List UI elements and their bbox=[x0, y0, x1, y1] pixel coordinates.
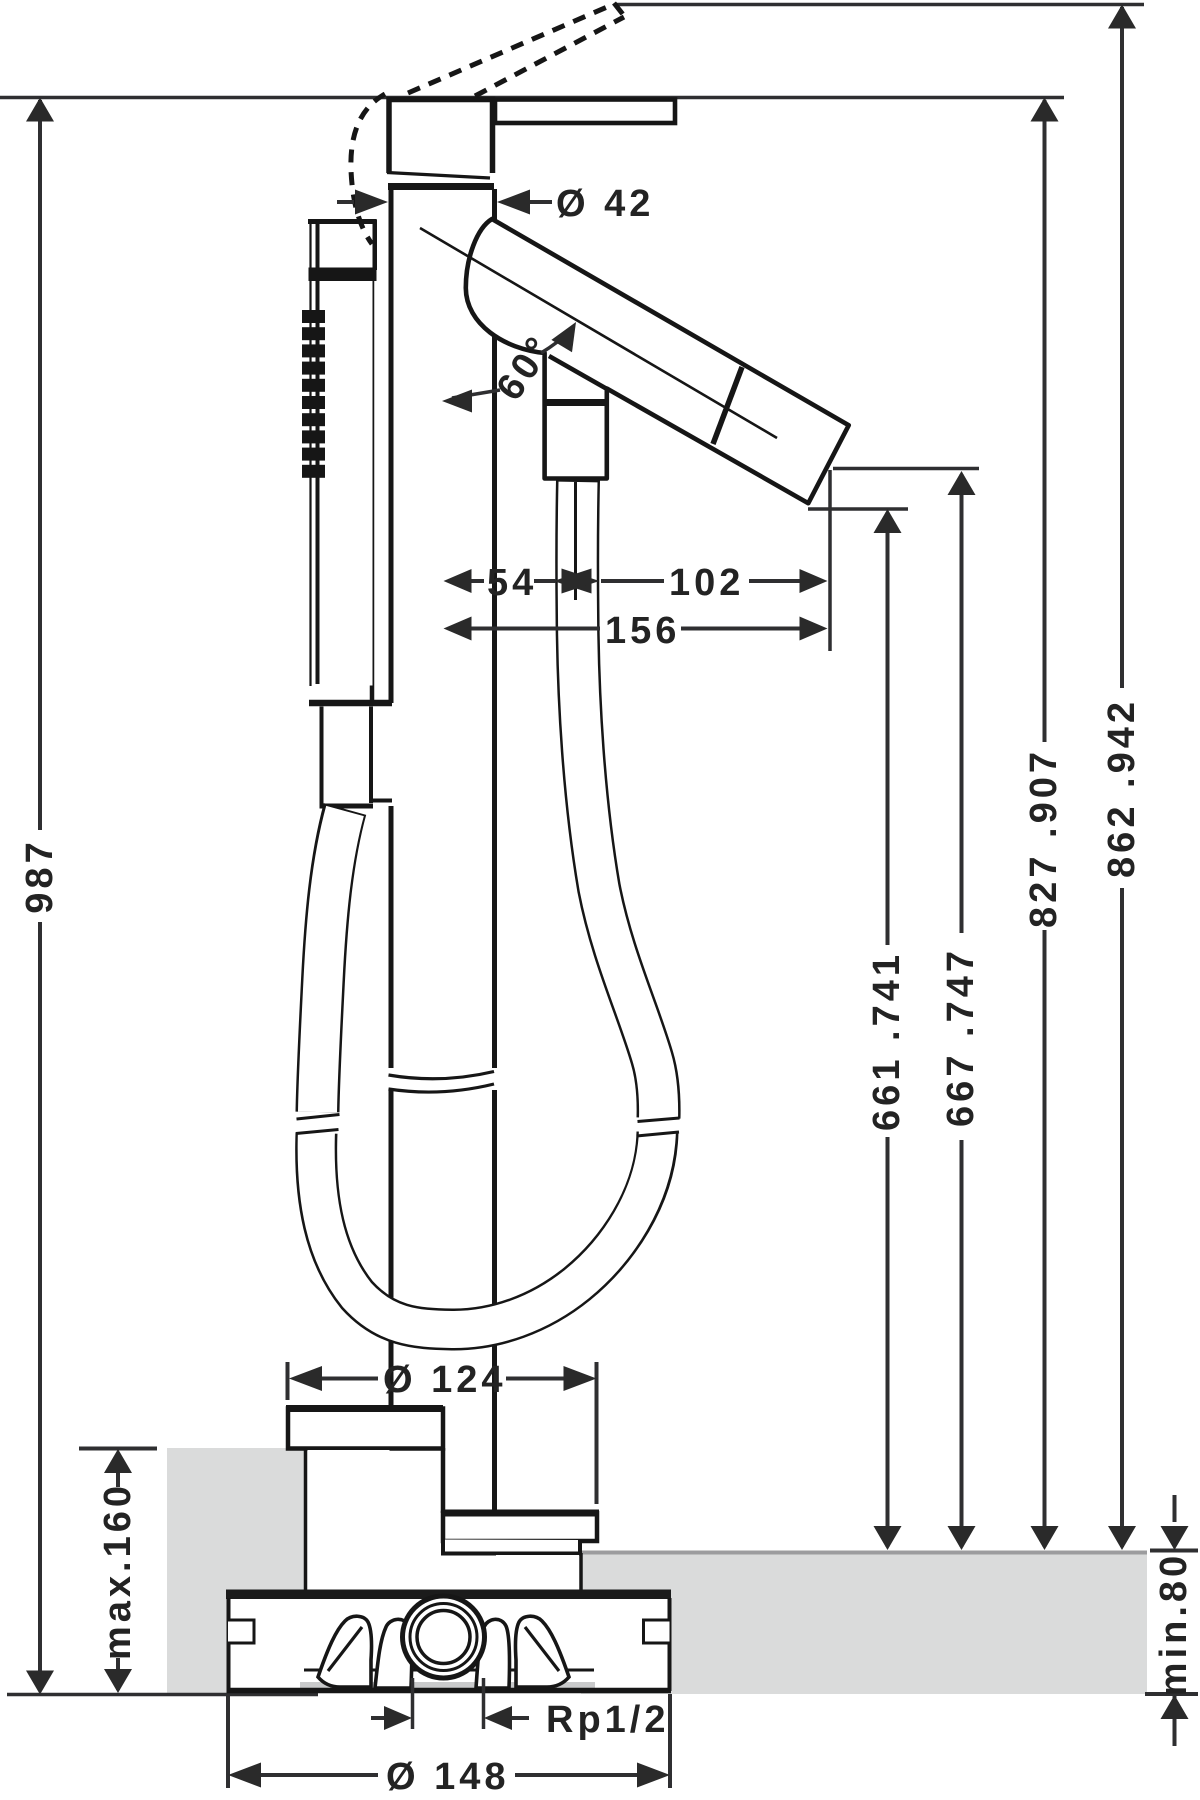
svg-text:661 .741: 661 .741 bbox=[866, 951, 908, 1131]
svg-text:Ø 42: Ø 42 bbox=[556, 183, 654, 225]
svg-text:Rp1/2: Rp1/2 bbox=[546, 1699, 669, 1741]
svg-text:min.80: min.80 bbox=[1153, 1552, 1195, 1696]
svg-text:max.160: max.160 bbox=[97, 1482, 139, 1660]
svg-text:827 .907: 827 .907 bbox=[1023, 748, 1065, 928]
svg-text:Ø 148: Ø 148 bbox=[386, 1756, 510, 1798]
svg-text:156: 156 bbox=[605, 610, 680, 652]
svg-text:667 .747: 667 .747 bbox=[940, 947, 982, 1127]
svg-text:987: 987 bbox=[19, 838, 61, 913]
svg-text:Ø 124: Ø 124 bbox=[383, 1359, 507, 1401]
svg-text:102: 102 bbox=[669, 562, 744, 604]
svg-text:862 .942: 862 .942 bbox=[1101, 698, 1143, 878]
svg-text:54: 54 bbox=[487, 562, 537, 604]
